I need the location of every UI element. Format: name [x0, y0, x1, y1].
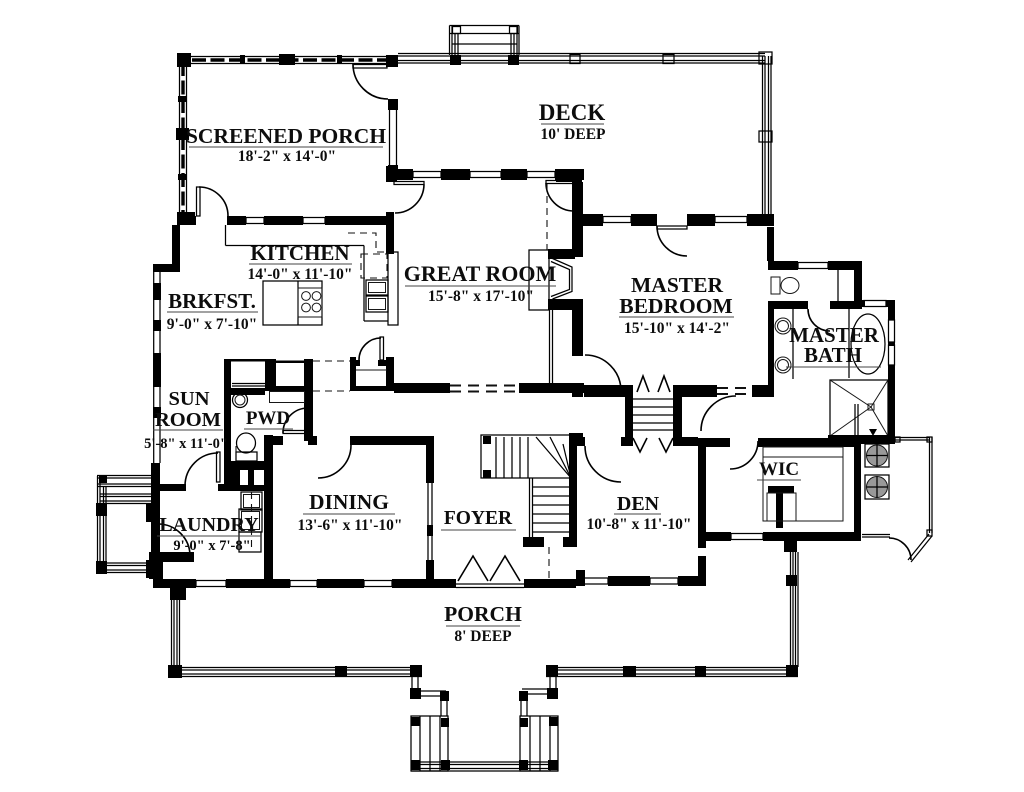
- svg-text:5'-8" x 11'-0": 5'-8" x 11'-0": [144, 436, 228, 452]
- svg-text:14'-0" x 11'-10": 14'-0" x 11'-10": [247, 266, 352, 283]
- svg-text:13'-6" x 11'-10": 13'-6" x 11'-10": [297, 517, 402, 534]
- svg-text:18'-2" x 14'-0": 18'-2" x 14'-0": [238, 148, 336, 165]
- svg-text:SCREENED PORCH: SCREENED PORCH: [186, 124, 386, 148]
- svg-text:9'-0" x 7'-10": 9'-0" x 7'-10": [167, 316, 257, 333]
- svg-text:8' DEEP: 8' DEEP: [454, 628, 512, 645]
- svg-text:BEDROOM: BEDROOM: [619, 294, 732, 318]
- svg-text:15'-8" x 17'-10": 15'-8" x 17'-10": [428, 288, 534, 305]
- svg-text:DINING: DINING: [309, 490, 389, 514]
- svg-text:9'-0" x 7'-8": 9'-0" x 7'-8": [173, 538, 250, 554]
- svg-text:PORCH: PORCH: [444, 602, 522, 626]
- svg-text:FOYER: FOYER: [444, 508, 513, 529]
- svg-text:10'-8" x 11'-10": 10'-8" x 11'-10": [586, 516, 691, 533]
- svg-text:WIC: WIC: [759, 459, 799, 480]
- svg-text:BRKFST.: BRKFST.: [168, 289, 256, 313]
- svg-text:DEN: DEN: [617, 493, 660, 515]
- svg-text:KITCHEN: KITCHEN: [250, 241, 349, 265]
- svg-text:SUN: SUN: [168, 388, 209, 410]
- svg-text:10' DEEP: 10' DEEP: [540, 126, 606, 143]
- svg-text:DECK: DECK: [539, 100, 606, 125]
- svg-text:BATH: BATH: [804, 343, 862, 367]
- svg-text:ROOM: ROOM: [155, 409, 221, 431]
- svg-text:PWD: PWD: [246, 408, 290, 429]
- svg-text:GREAT ROOM: GREAT ROOM: [404, 261, 557, 286]
- svg-text:LAUNDRY: LAUNDRY: [159, 514, 259, 536]
- svg-text:15'-10" x 14'-2": 15'-10" x 14'-2": [624, 320, 730, 337]
